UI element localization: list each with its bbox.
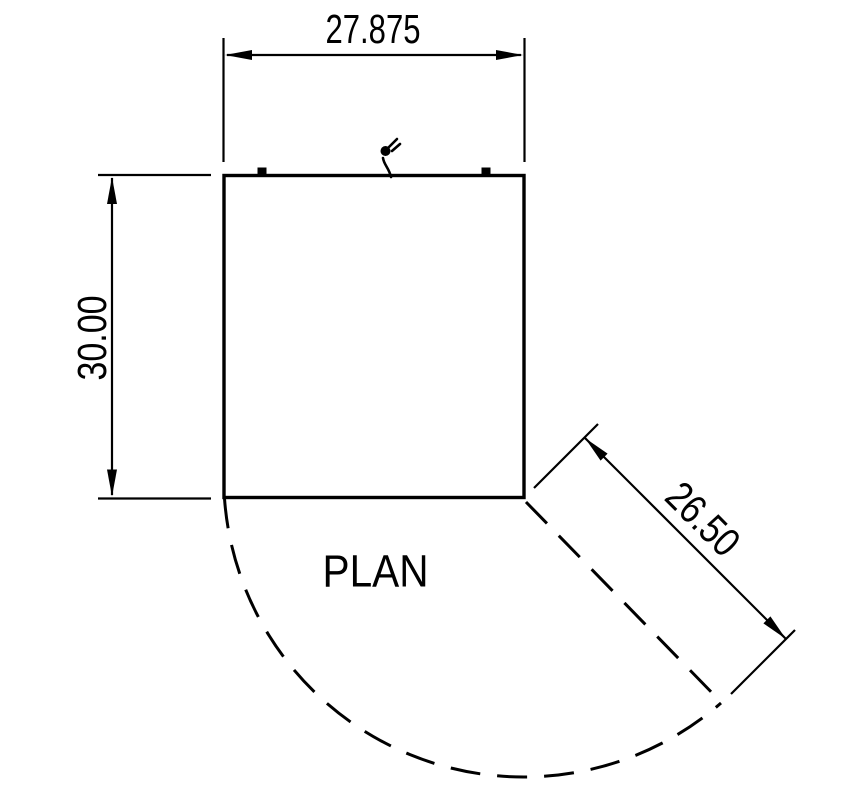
width-dimension: 27.875	[224, 6, 525, 162]
door-swing-dimension: 26.50	[534, 424, 795, 694]
plug-prong-1	[389, 139, 397, 147]
unit-outline	[224, 176, 524, 498]
door-swing-arc	[225, 499, 722, 777]
door-dimension-line	[585, 438, 786, 639]
depth-dimension-value: 30.00	[69, 296, 115, 381]
plug-icon	[381, 139, 401, 177]
door-dimension-value: 26.50	[657, 473, 750, 566]
plug-prong-2	[392, 144, 400, 151]
depth-dimension: 30.00	[69, 175, 211, 499]
plan-drawing: 27.875 30.00 26.50 PLAN	[0, 0, 852, 800]
hinge-right-icon	[482, 168, 491, 176]
hinge-left-icon	[258, 168, 267, 176]
width-dimension-value: 27.875	[326, 6, 421, 52]
width-arrow-left-icon	[225, 50, 252, 60]
door-extension-line-near	[534, 424, 598, 488]
width-arrow-right-icon	[496, 50, 523, 60]
depth-arrow-top-icon	[107, 177, 117, 204]
plan-drawing-canvas: 27.875 30.00 26.50 PLAN	[0, 0, 852, 800]
depth-arrow-bottom-icon	[107, 470, 117, 497]
view-label: PLAN	[323, 546, 429, 597]
